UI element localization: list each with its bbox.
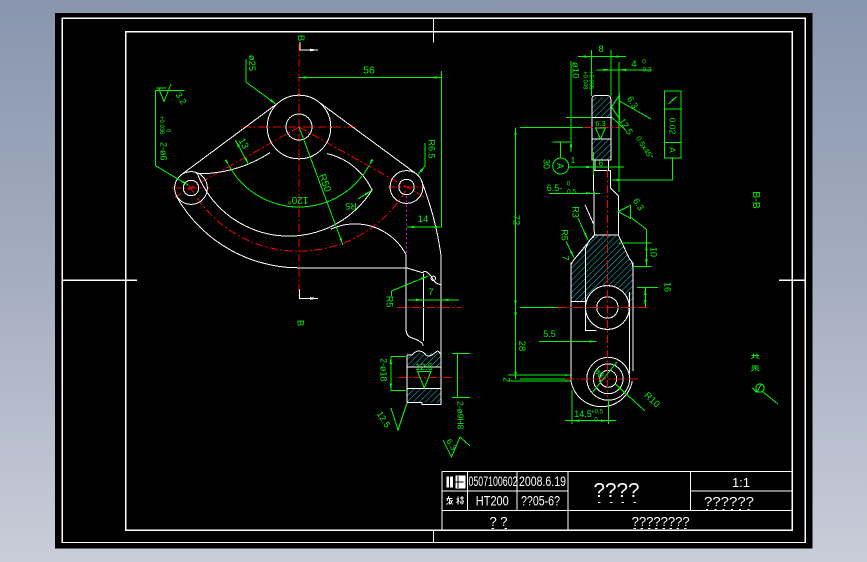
- svg-text:0507100602: 0507100602: [469, 474, 518, 489]
- svg-text:+0.5: +0.5: [591, 410, 604, 416]
- svg-text:????: ????: [594, 480, 640, 502]
- svg-text:? ?: ? ?: [489, 514, 507, 529]
- svg-text:R6.5: R6.5: [427, 139, 437, 158]
- svg-text:0: 0: [642, 59, 646, 66]
- svg-text:-0.2: -0.2: [640, 67, 652, 74]
- svg-text:2: 2: [502, 377, 512, 382]
- svg-text:B: B: [295, 320, 306, 326]
- svg-text:8: 8: [598, 44, 603, 55]
- svg-text:R3: R3: [571, 206, 581, 218]
- svg-text:1: 1: [571, 155, 576, 165]
- svg-text:0.02: 0.02: [668, 118, 678, 135]
- svg-text:R5: R5: [560, 229, 570, 241]
- svg-text:0.5: 0.5: [567, 189, 576, 196]
- svg-text:6.5-: 6.5-: [547, 183, 563, 193]
- svg-text:14: 14: [418, 214, 429, 225]
- svg-text:A: A: [668, 147, 678, 153]
- svg-text:30: 30: [542, 159, 552, 169]
- svg-text:56: 56: [363, 65, 375, 77]
- svg-text:????????: ????????: [632, 514, 690, 529]
- svg-text:HT200: HT200: [476, 494, 509, 509]
- svg-text:16: 16: [663, 282, 673, 292]
- svg-text:14.5: 14.5: [574, 409, 592, 419]
- svg-text:2-ø6: 2-ø6: [159, 142, 169, 161]
- svg-text:2008.6.19: 2008.6.19: [519, 474, 566, 489]
- svg-text:B: B: [295, 35, 306, 41]
- svg-text:72: 72: [511, 215, 522, 226]
- svg-text:R5: R5: [345, 201, 357, 211]
- svg-text:1:1: 1:1: [732, 475, 750, 490]
- svg-text:10: 10: [649, 247, 659, 257]
- svg-text:4: 4: [631, 59, 636, 70]
- svg-text:28: 28: [516, 341, 527, 352]
- svg-text:120°: 120°: [288, 194, 309, 205]
- svg-text:R5: R5: [385, 296, 395, 308]
- svg-text:5.5: 5.5: [543, 329, 556, 339]
- svg-text:ø10: ø10: [570, 62, 581, 78]
- svg-text:??????: ??????: [704, 494, 754, 509]
- svg-text:7: 7: [428, 287, 433, 298]
- svg-text:+0.036: +0.036: [158, 116, 164, 135]
- svg-text:B-B: B-B: [750, 191, 762, 209]
- svg-text:??05-6?: ??05-6?: [521, 494, 560, 509]
- svg-text:2-ø9H8: 2-ø9H8: [456, 401, 466, 430]
- svg-text:6.3: 6.3: [595, 119, 605, 128]
- svg-text:+0.049: +0.049: [582, 71, 588, 90]
- svg-text:+0.005: +0.005: [588, 71, 594, 90]
- svg-text:0: 0: [567, 181, 571, 188]
- svg-text:2-ø18: 2-ø18: [379, 358, 389, 382]
- svg-text:ø25: ø25: [246, 55, 257, 71]
- svg-text:A: A: [555, 163, 565, 169]
- svg-text:7: 7: [561, 255, 571, 260]
- svg-text:12.5: 12.5: [415, 362, 433, 372]
